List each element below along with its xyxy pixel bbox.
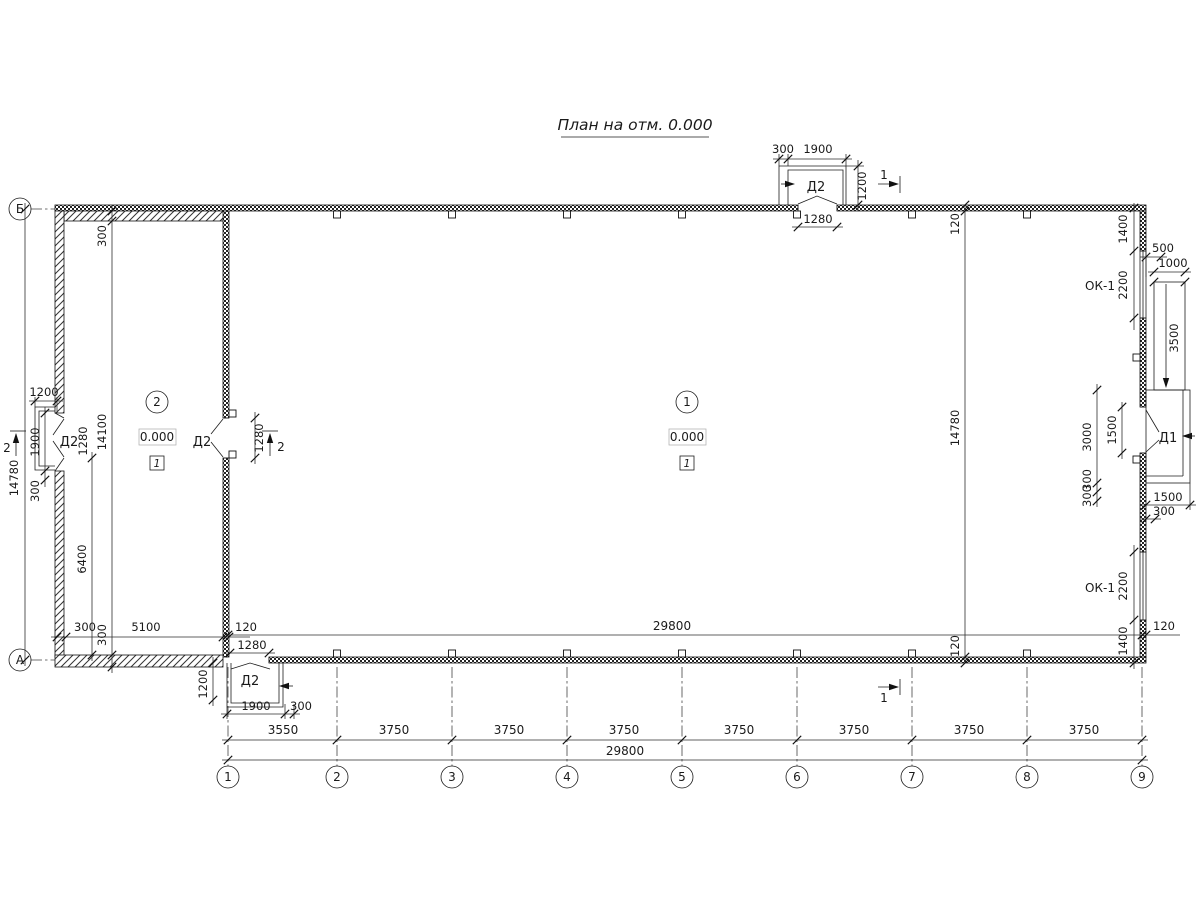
- right-wall-seg3: [1140, 453, 1146, 552]
- svg-text:1: 1: [880, 691, 888, 705]
- windows: [1140, 251, 1146, 620]
- dim-label: 5100: [131, 620, 160, 634]
- dim-label: 1400: [1116, 214, 1130, 243]
- annex-top-wall: [64, 211, 223, 221]
- dim-label: 3750: [1069, 723, 1100, 737]
- door-label-d2-partition: Д2: [193, 435, 211, 450]
- dim-label: 1000: [1158, 256, 1187, 270]
- axis-bubble-5: 5: [671, 766, 693, 788]
- dim-label: 14780: [948, 410, 962, 447]
- dim-label: 1900: [241, 699, 270, 713]
- dim-label: 2200: [1116, 571, 1130, 600]
- window-label-ok1-bottom: ОК-1: [1085, 581, 1115, 595]
- room-1-mark: 1 0.000 1: [669, 391, 706, 470]
- dim-label: 300: [1080, 485, 1094, 507]
- axis-bubble-8: 8: [1016, 766, 1038, 788]
- svg-text:4: 4: [563, 770, 571, 784]
- dim-label: 3750: [839, 723, 870, 737]
- axis-bubble-3: 3: [441, 766, 463, 788]
- dim-label: 300: [1153, 504, 1175, 518]
- dim-label: 1500: [1105, 415, 1119, 444]
- dim-label: 2200: [1116, 270, 1130, 299]
- svg-text:8: 8: [1023, 770, 1031, 784]
- svg-text:Б: Б: [16, 202, 24, 216]
- door-label-d1: Д1: [1159, 431, 1177, 446]
- door-label-d2-top: Д2: [807, 180, 825, 195]
- door-label-d2-left: Д2: [60, 435, 78, 450]
- dim-label: 300: [95, 225, 109, 247]
- dim-label: 1900: [28, 427, 42, 456]
- axis-bubble-6: 6: [786, 766, 808, 788]
- svg-text:7: 7: [908, 770, 916, 784]
- dim-label: 300: [290, 699, 312, 713]
- dim-label: 6400: [75, 544, 89, 573]
- partition-lower: [223, 458, 229, 657]
- window-ok1-bottom: [1140, 552, 1146, 620]
- floor-plan-svg: План на отм. 0.000: [0, 0, 1200, 900]
- axis-bubble-a: А: [9, 649, 31, 671]
- drawing-sheet: План на отм. 0.000: [0, 0, 1200, 900]
- axis-bubble-2: 2: [326, 766, 348, 788]
- dim-label: 1280: [803, 212, 832, 226]
- dim-label: 3500: [1167, 323, 1181, 352]
- top-wall-right: [837, 205, 1146, 211]
- axis-bubble-4: 4: [556, 766, 578, 788]
- svg-text:5: 5: [678, 770, 686, 784]
- dim-label: 3750: [494, 723, 525, 737]
- level-mark: 0.000: [140, 430, 174, 444]
- dim-label: 1200: [29, 385, 58, 399]
- axis-bubble-b: Б: [9, 198, 31, 220]
- dim-label: 300: [74, 620, 96, 634]
- svg-text:6: 6: [793, 770, 801, 784]
- svg-text:2: 2: [333, 770, 341, 784]
- axis-bubble-9: 9: [1131, 766, 1153, 788]
- exterior-structures: [1146, 282, 1190, 483]
- section-1-bottom: 1: [878, 679, 900, 705]
- dim-label: 120: [948, 635, 962, 657]
- page-title: План на отм. 0.000: [557, 116, 712, 134]
- dim-label: 3000: [1080, 422, 1094, 451]
- axis-bubbles: Б А 1 2 3 4 5 6 7 8 9: [9, 198, 1153, 788]
- dim-label: 300: [772, 142, 794, 156]
- dim-label: 120: [1153, 619, 1175, 633]
- annex-bottom-wall: [55, 655, 223, 667]
- dim-label: 3550: [268, 723, 299, 737]
- dim-label: 300: [28, 480, 42, 502]
- dim-label: 120: [948, 213, 962, 235]
- dim-label: 3750: [724, 723, 755, 737]
- section-1-top: 1: [878, 168, 900, 193]
- axis-bubble-1: 1: [217, 766, 239, 788]
- door-label-d2-bottom: Д2: [241, 674, 259, 689]
- dim-label: 14100: [95, 414, 109, 451]
- floor-type-mark: 1: [154, 458, 161, 470]
- dim-label: 120: [235, 620, 257, 634]
- dim-label: 3750: [954, 723, 985, 737]
- partition-upper: [223, 211, 229, 418]
- dim-label: 300: [95, 624, 109, 646]
- svg-text:А: А: [16, 653, 25, 667]
- dim-label: 1900: [803, 142, 832, 156]
- dim-label: 1500: [1153, 490, 1182, 504]
- room-2-mark: 2 0.000 1: [139, 391, 176, 470]
- dim-label: 29800: [606, 744, 644, 758]
- panel-walls: [55, 205, 1146, 663]
- level-mark: 0.000: [670, 430, 704, 444]
- dimension-lines: [25, 154, 1196, 760]
- window-ok1-top: [1140, 251, 1146, 318]
- dim-label: 1200: [855, 171, 869, 200]
- dim-label: 29800: [653, 619, 691, 633]
- door-d2-partition: [211, 418, 229, 458]
- right-wall-seg1: [1140, 211, 1146, 251]
- svg-text:2: 2: [153, 395, 161, 409]
- svg-text:1: 1: [224, 770, 232, 784]
- svg-text:3: 3: [448, 770, 456, 784]
- door-d1: [1140, 407, 1195, 453]
- annex-left-wall-upper: [55, 211, 64, 413]
- right-wall-seg2: [1140, 318, 1146, 407]
- annex-left-wall-lower: [55, 471, 64, 657]
- dim-label: 14780: [7, 460, 21, 497]
- bottom-wall: [269, 657, 1146, 663]
- dim-label: 1200: [196, 669, 210, 698]
- dim-label: 1280: [237, 638, 266, 652]
- window-label-ok1-top: ОК-1: [1085, 279, 1115, 293]
- svg-text:1: 1: [880, 168, 888, 182]
- svg-text:2: 2: [277, 440, 285, 454]
- dim-label: 3750: [379, 723, 410, 737]
- dim-label: 1400: [1116, 626, 1130, 655]
- svg-text:2: 2: [3, 441, 11, 455]
- drawing-title: План на отм. 0.000: [557, 116, 712, 137]
- dim-label: 500: [1152, 241, 1174, 255]
- section-2-left: 2: [3, 431, 26, 456]
- svg-text:1: 1: [683, 395, 691, 409]
- dim-label: 1280: [252, 423, 266, 452]
- floor-type-mark: 1: [684, 458, 691, 470]
- dim-label: 3750: [609, 723, 640, 737]
- axis-bubble-7: 7: [901, 766, 923, 788]
- top-wall-left: [55, 205, 798, 211]
- svg-text:9: 9: [1138, 770, 1146, 784]
